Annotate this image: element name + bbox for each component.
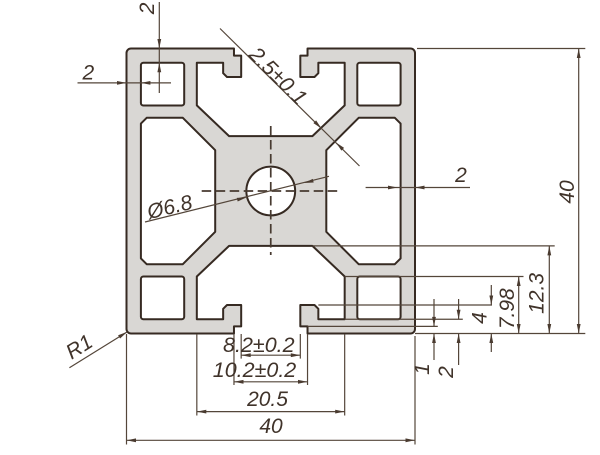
svg-text:2: 2: [435, 366, 458, 379]
svg-text:20.5: 20.5: [246, 388, 288, 411]
svg-text:1: 1: [411, 363, 434, 375]
svg-text:7.98: 7.98: [496, 288, 519, 329]
svg-text:12.3: 12.3: [526, 273, 549, 314]
svg-text:8.2±0.2: 8.2±0.2: [223, 333, 295, 357]
svg-text:2: 2: [81, 62, 94, 85]
svg-text:10.2±0.2: 10.2±0.2: [213, 358, 297, 382]
svg-text:40: 40: [259, 415, 283, 438]
svg-text:Ø6.8: Ø6.8: [144, 191, 195, 224]
svg-text:R1: R1: [62, 330, 97, 364]
svg-text:2: 2: [454, 164, 467, 187]
svg-text:4: 4: [469, 312, 492, 324]
svg-text:40: 40: [556, 180, 579, 204]
svg-text:2: 2: [136, 2, 159, 15]
